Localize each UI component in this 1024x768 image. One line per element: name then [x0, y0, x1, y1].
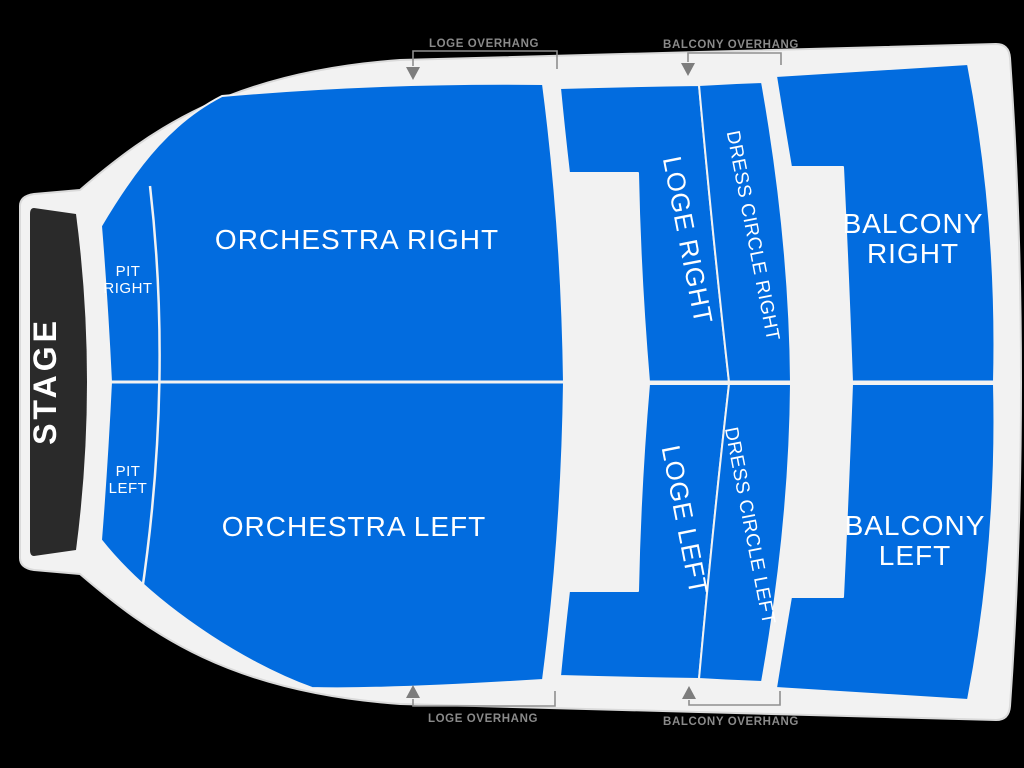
- loge-overhang-label-top: LOGE OVERHANG: [429, 38, 539, 50]
- balcony-overhang-label-top: BALCONY OVERHANG: [663, 39, 799, 51]
- stage-label: STAGE: [27, 317, 63, 445]
- orchestra-left-label: ORCHESTRA LEFT: [222, 511, 486, 542]
- orchestra-right-label: ORCHESTRA RIGHT: [215, 224, 499, 255]
- loge-overhang-label-bottom: LOGE OVERHANG: [428, 713, 538, 725]
- seat-map: STAGE PITRIGHT PITLEFT ORCHESTRA RIGHT O…: [0, 0, 1024, 768]
- balcony-overhang-label-bottom: BALCONY OVERHANG: [663, 716, 799, 728]
